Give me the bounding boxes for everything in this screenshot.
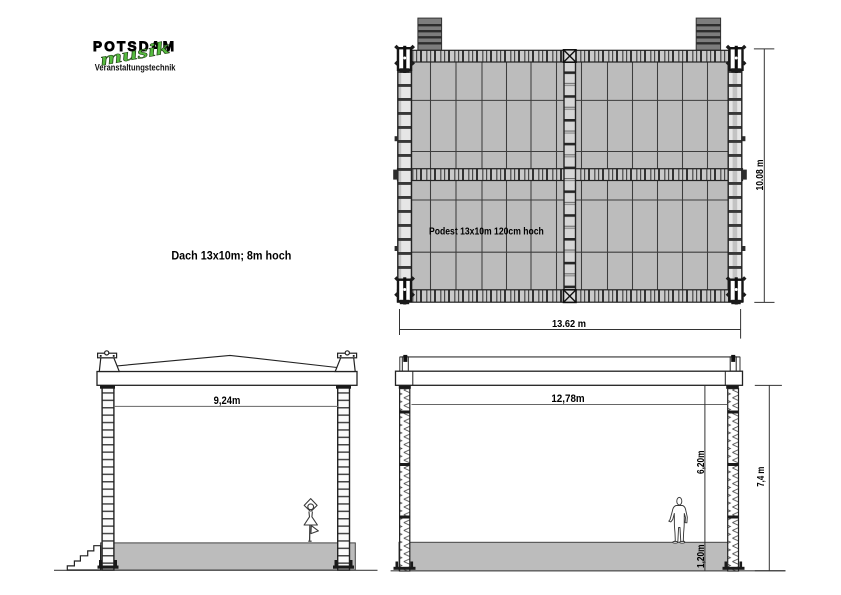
svg-text:Podest 13x10m 120cm hoch: Podest 13x10m 120cm hoch <box>429 227 544 238</box>
svg-text:6,20m: 6,20m <box>696 450 707 474</box>
svg-text:12,78m: 12,78m <box>551 393 584 405</box>
svg-text:9,24m: 9,24m <box>214 395 241 407</box>
svg-text:13.62 m: 13.62 m <box>552 319 586 330</box>
svg-text:1,20m: 1,20m <box>696 544 707 568</box>
svg-text:Dach 13x10m; 8m hoch: Dach 13x10m; 8m hoch <box>171 251 291 263</box>
svg-text:10.08 m: 10.08 m <box>755 159 766 190</box>
svg-text:Veranstaltungstechnik: Veranstaltungstechnik <box>95 63 177 73</box>
svg-text:7,4 m: 7,4 m <box>756 467 767 487</box>
